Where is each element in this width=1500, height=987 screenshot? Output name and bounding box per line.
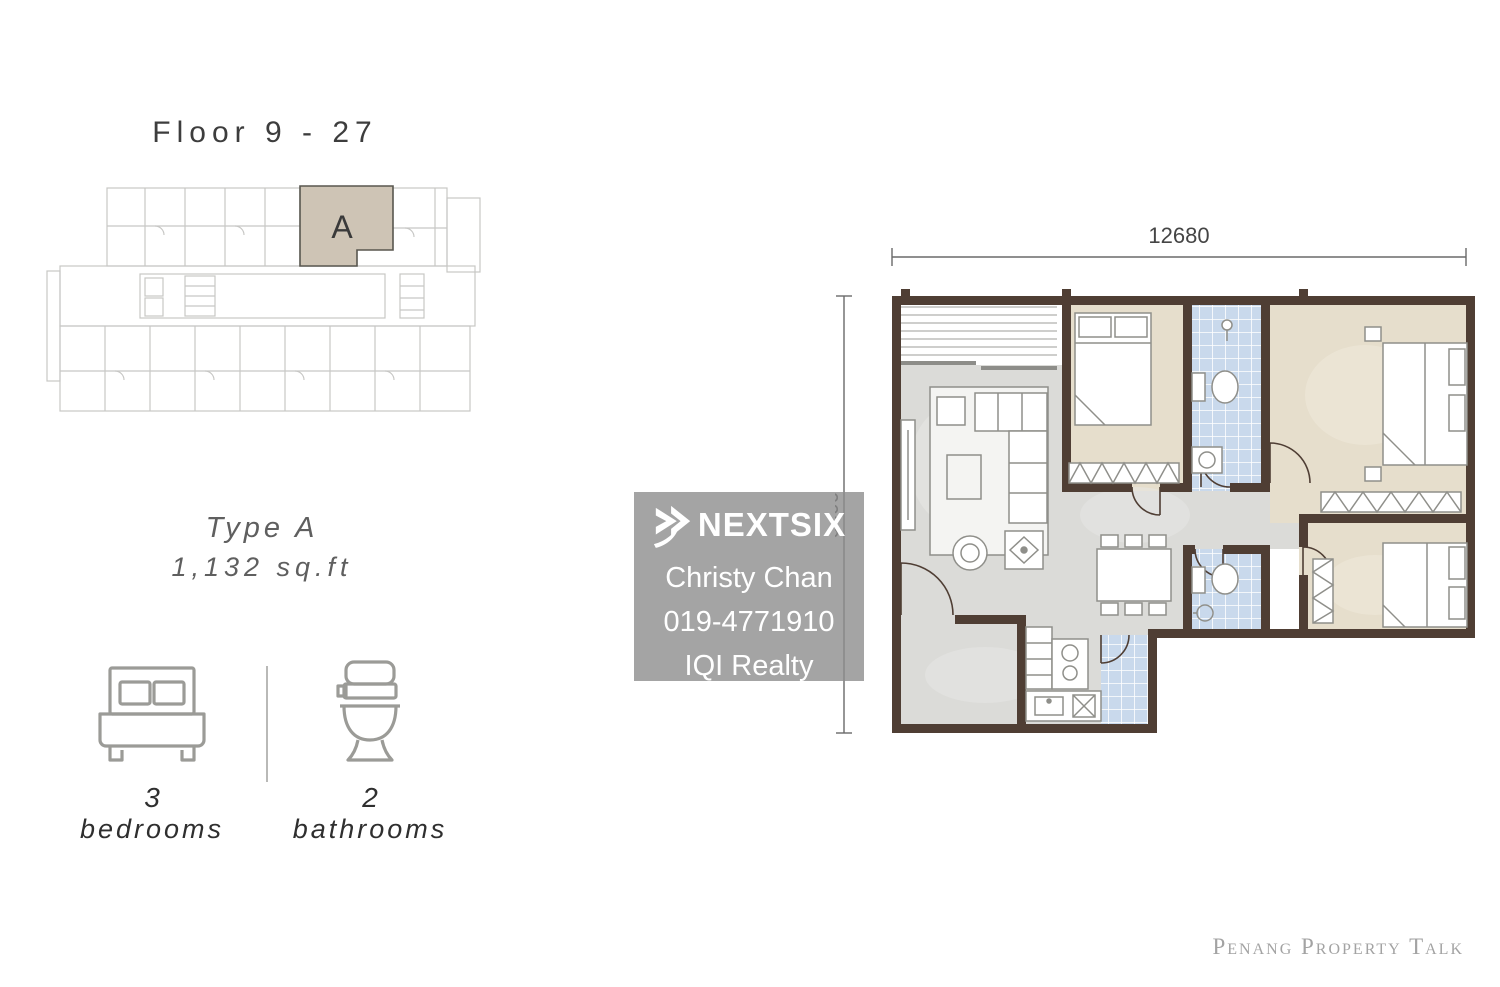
sofa [975,393,1047,431]
dimension-width-label: 12680 [1148,223,1209,248]
dimension-top [892,248,1466,266]
bedroom2-bed [1075,313,1151,425]
stove [1052,639,1088,689]
agency-name: IQI Realty [685,644,814,688]
icons-divider [266,666,268,782]
bathrooms-count: 2 [330,782,410,814]
unit-a-letter: A [331,209,353,245]
side-table [937,397,965,425]
agent-phone: 019-4771910 [664,600,835,644]
watermark-logo-row: NEXTSIX [652,502,846,548]
building-key-plan: A [45,176,481,426]
keyplan-outline [47,188,480,411]
yard-floor [1101,635,1148,725]
agent-name: Christy Chan [665,556,833,600]
dining-set [1097,535,1171,615]
balcony-floor [901,305,1057,361]
unit-floor-plan: 12680 9500 [835,215,1485,760]
bedroom3-bed [1383,543,1467,627]
floor-range-label: Floor 9 - 27 [110,116,420,150]
unit-area-label: 1,132 sq.ft [92,552,432,583]
nextsix-logo-icon [652,502,694,548]
brand-wordmark: NEXTSIX [698,506,846,544]
toilet-icon [330,658,410,774]
site-credit: Penang Property Talk [1212,934,1464,960]
bedrooms-label: bedrooms [52,814,252,845]
bedrooms-count: 3 [92,782,212,814]
flyer-page: Floor 9 - 27 [0,0,1500,987]
agent-watermark: NEXTSIX Christy Chan 019-4771910 IQI Rea… [634,492,864,681]
bed-icon [92,660,212,772]
bathrooms-label: bathrooms [280,814,460,845]
round-table [953,536,987,570]
unit-type-label: Type A [112,512,412,545]
